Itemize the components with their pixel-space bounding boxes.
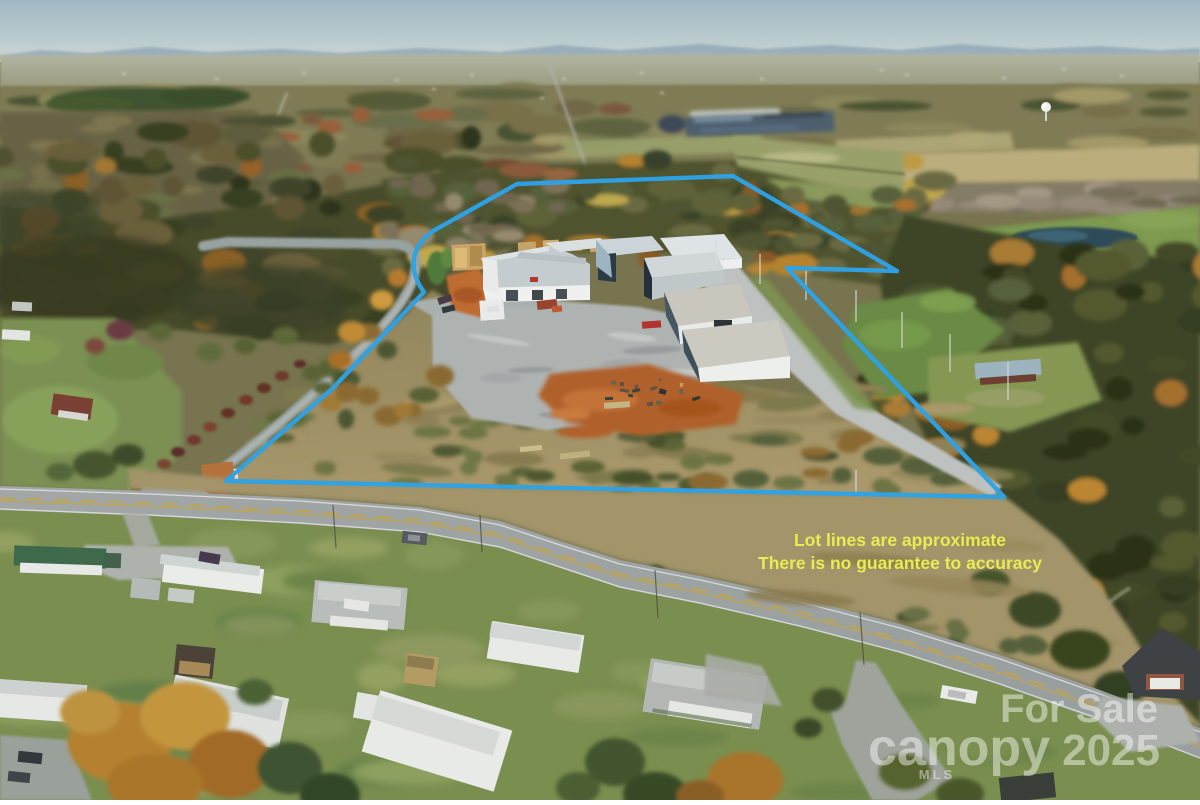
svg-text:2025: 2025 <box>1062 726 1160 775</box>
svg-text:Lot lines are approximate: Lot lines are approximate <box>794 530 1006 550</box>
svg-text:MLS: MLS <box>919 767 955 782</box>
svg-text:There is no guarantee to accur: There is no guarantee to accuracy <box>758 553 1042 573</box>
svg-text:canopy: canopy <box>868 719 1050 777</box>
